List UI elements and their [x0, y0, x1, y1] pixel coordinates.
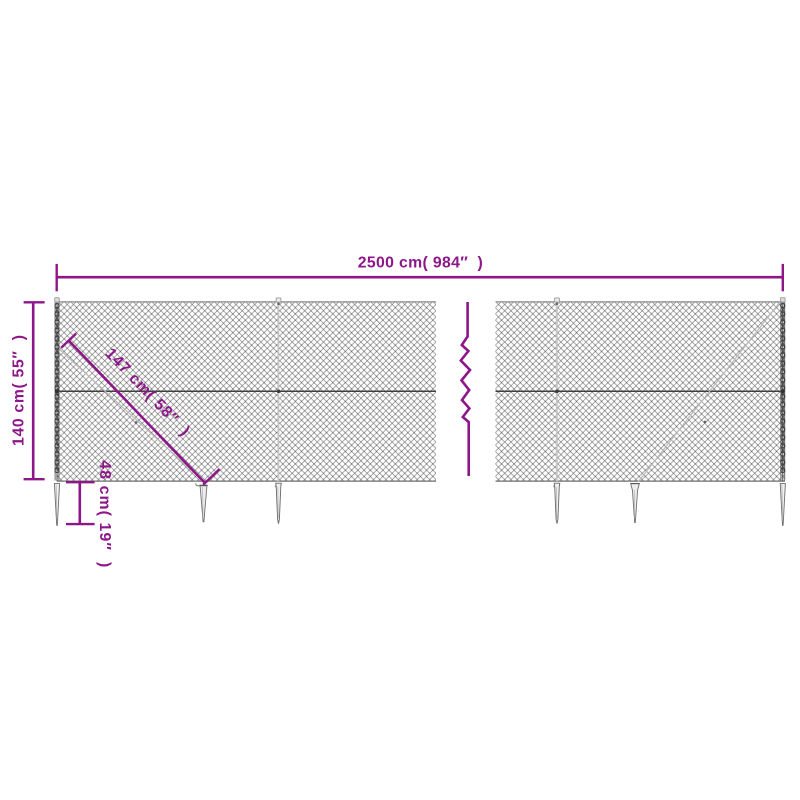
svg-text:2500 cm( 984″ ): 2500 cm( 984″ ) — [358, 255, 483, 272]
svg-text:48 cm( 19″ ): 48 cm( 19″ ) — [96, 460, 113, 567]
svg-text:140 cm( 55″ ): 140 cm( 55″ ) — [10, 335, 27, 446]
